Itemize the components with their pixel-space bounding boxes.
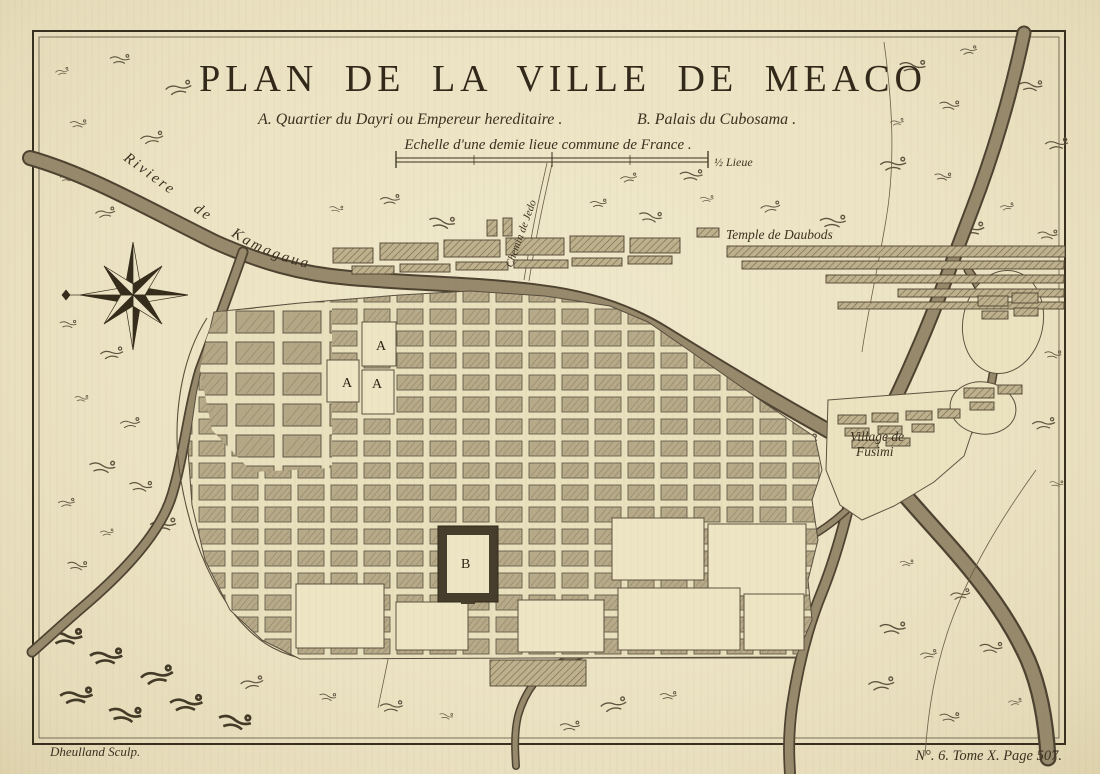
grass-tuft-icon <box>140 665 174 685</box>
grass-tuft-icon <box>939 711 959 722</box>
grass-tuft-icon <box>890 118 904 125</box>
grass-tuft-icon <box>165 80 192 96</box>
compound-s-2 <box>296 584 384 648</box>
grass-tuft-icon <box>1019 79 1043 91</box>
legend-a: A. Quartier du Dayri ou Empereur heredit… <box>257 111 562 128</box>
village-fusimi-label-1: Village de <box>850 429 904 444</box>
grass-tuft-icon <box>240 676 264 690</box>
temple-daubods-label: Temple de Daubods <box>726 227 833 242</box>
grass-tuft-icon <box>1008 698 1022 706</box>
compound-se-1 <box>612 518 704 580</box>
grass-tuft-icon <box>1032 417 1055 429</box>
grass-tuft-icon <box>218 711 252 731</box>
scale-caption: Echelle d'une demie lieue commune de Fra… <box>403 137 691 153</box>
grass-tuft-icon <box>380 701 403 712</box>
grass-tuft-icon <box>900 559 914 566</box>
city-grid <box>188 291 822 686</box>
grass-tuft-icon <box>428 214 455 230</box>
grass-tuft-icon <box>939 99 960 110</box>
grass-tuft-icon <box>760 201 781 213</box>
grass-tuft-icon <box>1000 203 1014 211</box>
scale-unit-label: ½ Lieue <box>714 155 753 169</box>
compound-se-2 <box>708 524 806 596</box>
compound-se-4 <box>744 594 804 650</box>
grass-tuft-icon <box>439 711 453 719</box>
engraver-imprint: Dheulland Sculp. <box>49 744 140 759</box>
grass-tuft-icon <box>55 67 69 75</box>
legend-b: B. Palais du Cubosama . <box>637 111 796 128</box>
grass-tuft-icon <box>879 621 905 634</box>
grass-tuft-icon <box>934 171 951 181</box>
map-canvas: PLAN DE LA VILLE DE MEACO A. Quartier du… <box>0 0 1100 774</box>
grass-tuft-icon <box>638 209 662 223</box>
grass-tuft-icon <box>129 479 153 492</box>
grass-tuft-icon <box>100 347 124 360</box>
compound-se-3 <box>618 588 740 650</box>
grass-tuft-icon <box>868 677 895 691</box>
grass-tuft-icon <box>140 131 164 144</box>
temple-daubods-icon <box>697 228 719 237</box>
grass-tuft-icon <box>660 691 677 699</box>
grass-tuft-icon <box>1038 229 1058 239</box>
grass-tuft-icon <box>60 319 77 328</box>
road-southeast <box>925 470 1036 756</box>
city-south-annex <box>490 660 586 686</box>
village-fusimi-label-2: Fusimi <box>855 444 894 459</box>
grass-tuft-icon <box>90 649 122 664</box>
grass-tuft-icon <box>58 498 75 507</box>
grass-tuft-icon <box>67 559 88 571</box>
compound-s-3 <box>396 602 468 650</box>
map-title: PLAN DE LA VILLE DE MEACO <box>199 58 927 100</box>
grass-tuft-icon <box>100 529 114 536</box>
marker-a-1: A <box>376 339 387 354</box>
scale-bar <box>396 151 708 168</box>
compound-s-1 <box>518 600 604 652</box>
grass-tuft-icon <box>590 199 607 207</box>
grass-tuft-icon <box>620 173 638 183</box>
compass-rose <box>62 242 188 350</box>
grass-tuft-icon <box>560 721 580 730</box>
marker-b: B <box>461 557 470 572</box>
grass-tuft-icon <box>380 195 400 205</box>
grass-tuft-icon <box>600 696 627 712</box>
grass-tuft-icon <box>319 691 337 701</box>
grass-tuft-icon <box>95 207 116 218</box>
grass-tuft-icon <box>170 695 203 710</box>
grass-tuft-icon <box>120 417 140 428</box>
grass-tuft-icon <box>920 649 937 659</box>
engraved-map-sheet: PLAN DE LA VILLE DE MEACO A. Quartier du… <box>0 0 1100 774</box>
grass-tuft-icon <box>110 54 130 63</box>
grass-tuft-icon <box>960 46 977 55</box>
grass-tuft-icon <box>680 169 703 180</box>
grass-tuft-icon <box>880 157 907 170</box>
grass-tuft-icon <box>70 119 87 127</box>
grass-tuft-icon <box>700 195 714 201</box>
grass-tuft-icon <box>60 688 93 704</box>
plate-number: N°. 6. Tome X. Page 507. <box>914 748 1062 764</box>
grass-tuft-icon <box>820 215 846 227</box>
grass-tuft-icon <box>75 394 89 401</box>
marker-a-2: A <box>342 376 353 391</box>
grass-tuft-icon <box>108 704 142 724</box>
compass-fleur-icon <box>62 290 70 300</box>
grass-tuft-icon <box>1049 479 1063 487</box>
grass-tuft-icon <box>979 641 1002 653</box>
grass-tuft-icon <box>329 204 343 212</box>
marker-a-3: A <box>372 377 383 392</box>
grass-tuft-icon <box>89 459 116 473</box>
